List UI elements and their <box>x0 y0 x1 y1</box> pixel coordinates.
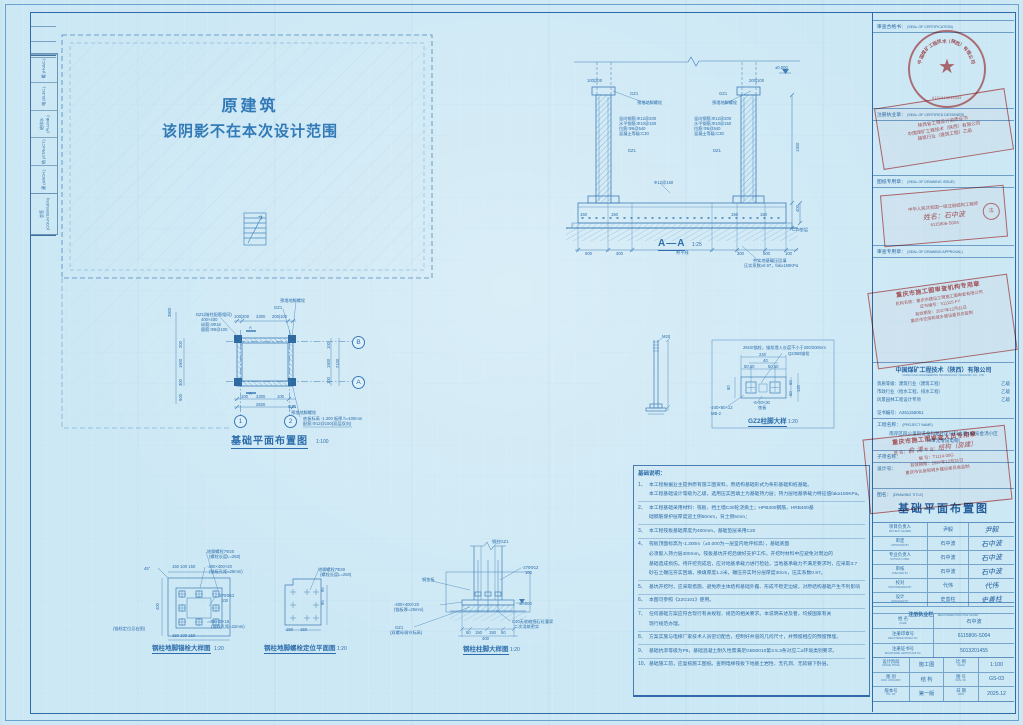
dim-label: 100 <box>327 377 332 384</box>
note-item: 8、方案实施与电梯厂家技术人员密切配合，控制好井道的几何尺寸，并预留相应的预留预… <box>638 631 865 645</box>
foundation-notes: 基础说明： 1、本工程根据业主提供原有施工图资料，原结构基础形式为条形基础和桩基… <box>633 465 870 697</box>
scale-label: 1:20 <box>788 420 798 426</box>
meta-row: 设计阶段DESIGN PHASE施工图比 例SCALE1:100 <box>873 658 1014 673</box>
dim-label: 50 <box>501 631 506 636</box>
dim-label: 150 <box>475 631 482 636</box>
detail-title: GZ2柱脚大样 <box>748 418 787 427</box>
dim-label: 40 <box>763 359 768 364</box>
scale-label: 1:20 <box>214 647 224 653</box>
dim-label: 45° <box>144 567 150 572</box>
registered-row: 注册证书号REGISTERED CERTIFICATE NO.501320145… <box>873 643 1014 658</box>
rebar-label: 100 <box>525 571 532 576</box>
rebar-label: 混凝土等级:C30 <box>619 132 649 137</box>
note-label: (锚栓定位见右图) <box>113 627 145 632</box>
rebar-label: 箍筋:Φ8@100 <box>201 328 227 333</box>
certificate-number: A261155061 <box>899 410 924 415</box>
signature-row: 专业负责人DIVISION CHIEF石中波石中波 <box>873 551 1014 565</box>
reviewer-stamp: 重庆市施工图审查人员专用章 姓 名：俞 涛 专 业：结构（房建） 编 号：T11… <box>862 425 1012 515</box>
dim-label: 400 <box>482 637 489 642</box>
dim-label: 1900 <box>327 359 332 368</box>
note-item: 3、本工程筏板基础厚度为400mm，基础垫层采用C20 <box>638 524 865 538</box>
detail-title: 钢柱地脚锚栓大样图 <box>152 645 211 654</box>
plate-label: (锚板孔距=25mm) <box>209 570 243 575</box>
column-label: GZ1 <box>288 405 296 410</box>
scale-label: 1:20 <box>337 647 347 653</box>
dim-label: 300 <box>737 252 744 257</box>
dim-label: 100 <box>241 395 248 400</box>
scale-label: 1:100 <box>316 440 329 446</box>
dim-label: 95 <box>321 587 326 592</box>
dim-label: 1300 <box>796 143 801 152</box>
seal-row-label: 图纸专用章： <box>877 180 906 185</box>
bolt-label: (螺栓长度L=250) <box>320 573 351 578</box>
note-item: 10、基础施工前，应复核施工图纸。查明电梯筏板下地基土岩性、无孔洞、无软弱下卧层… <box>638 658 865 672</box>
dim-label: 300 <box>616 252 623 257</box>
note-item: 7、任何基础方案应符合现行有关规程、规范的相关要求。本说明未述及者，均按国家有关… <box>638 608 865 631</box>
signature-row: 校对PROOFREADED BY代伟代伟 <box>873 579 1014 593</box>
dim-label: 150 <box>760 213 767 218</box>
column-label: GZ1 <box>719 92 727 97</box>
plate-label: 垫板 <box>758 406 766 411</box>
dim-label: 3800 <box>168 308 173 317</box>
dim-label: 240 <box>759 353 766 358</box>
dim-label: 60 <box>789 380 794 385</box>
dim-label: 500 <box>763 252 770 257</box>
qualification-rows: 资质等级：建筑行业（建筑工程）乙级市政行业（给水工程、排水工程）乙级风景园林工程… <box>877 380 1010 404</box>
existing-building-line2: 该阴影不在本次设计范围 <box>90 120 410 141</box>
seal-approval-row: 审查专用章： (SEAL OF DRAWING APPROVAL) <box>873 245 1014 258</box>
note-item: 1、本工程根据业主提供原有施工图资料，原结构基础形式为条形基础和桩基础。本工程基… <box>638 479 865 501</box>
note-item: 5、基坑开挖时，应采取措施，避免原主体结构基础外露、形成不稳定边坡，对原结构基础… <box>638 580 865 594</box>
dim-label: 60 <box>789 391 794 396</box>
scale-label: 1:20 <box>510 648 520 654</box>
existing-building-note: 原建筑 该阴影不在本次设计范围 <box>90 92 410 141</box>
certificate-label: 证书编号： <box>877 410 899 415</box>
dim-label: 2500 <box>256 403 265 408</box>
label: C15垫层 <box>792 228 808 233</box>
dim-label: 100 <box>785 252 792 257</box>
dim-label: 150 <box>580 213 587 218</box>
cut-label: A <box>249 392 252 397</box>
column-label: 钢柱GZ1 <box>492 540 509 545</box>
rebar-label: 100 <box>221 599 228 604</box>
rebar-label: Φ12@150 <box>654 181 673 186</box>
grid-bubble: B <box>352 336 365 349</box>
note-label: (双螺母调节标高) <box>390 631 422 636</box>
reviewer-name-label: 姓 名： <box>894 449 909 455</box>
grid-bubble: 1 <box>234 415 247 428</box>
plate-label: 钢垫板 <box>422 578 435 583</box>
dim-label: 1900 <box>179 359 184 368</box>
plate-label: MB-2 <box>711 412 721 417</box>
dim-label: 2300 <box>256 395 265 400</box>
bolt-label: 预埋地脚螺栓 <box>291 411 316 416</box>
dim-label: 95 <box>321 600 326 605</box>
dim-label: 50,50 <box>744 365 754 370</box>
signature-row: 审核CHECKED BY石中波石中波 <box>873 565 1014 579</box>
dim-label: 50 <box>466 631 471 636</box>
seal-row-label: 审查合格书： <box>877 25 906 30</box>
dim-label: 100 <box>327 342 332 349</box>
dim-label: 150 <box>300 628 307 633</box>
label: 压实系数≥0.97，fak≥150KPa <box>744 264 798 269</box>
detail-title: 钢柱地脚螺栓定位平面图 <box>264 645 336 654</box>
company-name-en: CHINA COAL ENGINEERING TECHNOLOGY (SHAAN… <box>873 374 1014 377</box>
note-label: 2M10锚栓，锚栓埋入长度不小于200/200mm <box>743 346 826 351</box>
seal-row-label-en: (SEAL OF CERTIFICATION) <box>907 25 953 29</box>
dim-label: 2100 <box>336 359 341 368</box>
note-item: 4、筏板顶面标高为-1.300m（±0.000为一层室内地坪标高），基础底面必须… <box>638 538 865 580</box>
signature-table: 项目负责人PROJECT LEADER尹毅尹毅审定APPROVED BY石中波石… <box>873 522 1014 607</box>
note-item: 2、本工程基础采用材料：筏板、挡土墙C30砼浇捣土；HPB300钢筋，HRB40… <box>638 501 865 524</box>
plate-label: (锚栓孔距=22mm) <box>211 625 245 630</box>
note-item: 9、基础抗渗等级为P8，基础混凝土耐久性需满足GB50010第3.5.3条对应二… <box>638 644 865 658</box>
dim-label: 150 100 150 <box>172 565 195 570</box>
plan-title: 基础平面布置图 <box>231 436 308 449</box>
project-label-en: (PROJECT NAME) <box>902 423 932 427</box>
dim-label: 150 <box>489 631 496 636</box>
level-label: ±0.000 <box>775 66 788 71</box>
dim-label: 50,50 <box>768 365 778 370</box>
meta-row: 版本号VOL. NO.第一版日 期DATE2025.12 <box>873 687 1014 701</box>
dim-label: 120 <box>797 385 802 392</box>
dim-label: 200 <box>179 341 184 348</box>
cut-label: A <box>249 326 252 331</box>
dim-label: 80 <box>727 385 732 390</box>
notes-header: 基础说明： <box>638 469 865 477</box>
dim-label: 150 <box>286 628 293 633</box>
meta-row: 图 别DWG. CATEGORY结 构图 号DWG. NO.GS-03 <box>873 673 1014 688</box>
dim-label: 400 <box>796 205 801 212</box>
note-label: 二次浇筑密实 <box>514 625 539 630</box>
note-label: Q235B锚栓 <box>788 352 809 357</box>
dim-label: 2300 <box>256 315 265 320</box>
bolt-label: 预埋地脚螺栓 <box>637 101 662 106</box>
reviewer-name: 俞 涛 <box>907 445 923 455</box>
registered-engineer-stamp: 中华人民共和国一级注册结构工程师 姓名：石中波 6115806-S004 注 <box>880 185 1008 248</box>
bolt-label: 预埋地脚螺栓 <box>280 299 305 304</box>
rebar-label: 混凝土等级:C30 <box>694 132 724 137</box>
drawing-meta-grid: 设计阶段DESIGN PHASE施工图比 例SCALE1:100图 别DWG. … <box>873 657 1014 702</box>
qualification-row: 市政行业（给水工程、排水工程）乙级 <box>877 388 1010 396</box>
detail-title: 钢柱柱脚大样图 <box>463 646 509 655</box>
dim-label: 500 <box>179 394 184 401</box>
star-icon: ★ <box>910 54 984 79</box>
registered-row: 注册印章号REGISTERED SIGNET NO.6115806-S004 <box>873 628 1014 643</box>
dim-label: 100 <box>277 395 284 400</box>
scale-label: 1:25 <box>692 243 702 249</box>
note-label: 配筋:Φ12@150(双层双向) <box>303 422 351 427</box>
existing-building-line1: 原建筑 <box>90 92 410 116</box>
dim-label: 150 <box>731 213 738 218</box>
column-label: GZ1 <box>630 92 638 97</box>
qualification-row: 资质等级：建筑行业（建筑工程）乙级 <box>877 380 1010 388</box>
qualification-row: 风景园林工程设计专项乙级 <box>877 396 1010 404</box>
dim-label: 200|100 <box>749 79 764 84</box>
dim-label: 100|200 <box>234 315 249 320</box>
dim-label: 300 <box>179 379 184 386</box>
registered-row: 姓 名NAME石中波 <box>873 613 1014 628</box>
level-label: ±0.000 <box>519 602 532 607</box>
dim-label: 200|100 <box>272 315 287 320</box>
grid-bubble: 2 <box>284 415 297 428</box>
notes-items: 1、本工程根据业主提供原有施工图资料，原结构基础形式为条形基础和桩基础。本工程基… <box>638 479 865 672</box>
bolt-label: (螺栓长度L=250) <box>209 555 240 560</box>
signature-row: 项目负责人PROJECT LEADER尹毅尹毅 <box>873 523 1014 537</box>
dim-label: 500 <box>585 252 592 257</box>
seal-row-label-en: (SEAL OF DRAWING APPROVAL) <box>907 250 963 254</box>
bolt-label: 预埋地脚螺栓 <box>712 101 737 106</box>
column-label: DZ1 <box>713 149 721 154</box>
seal-row-label: 审查专用章： <box>877 250 906 255</box>
dim-label: 100|200 <box>587 79 602 84</box>
note-item: 6、本图可参照《22G101》使用。 <box>638 594 865 608</box>
registered-rows: 姓 名NAME石中波注册印章号REGISTERED SIGNET NO.6115… <box>873 613 1014 658</box>
column-label: DZ1 <box>628 149 636 154</box>
blueprint-sheet: 会签 (COUNTERSIGN) 建 (ARCH.)结 (STRUCT.)给排水… <box>0 0 1023 725</box>
certificate-row: 证书编号：A261155061 <box>877 410 924 416</box>
dim-label: 150 <box>611 213 618 218</box>
grid-bubble: A <box>352 376 365 389</box>
reviewer-major-label: 专 业： <box>924 446 939 452</box>
label: 夯平线 <box>676 251 689 256</box>
signature-row: 审定APPROVED BY石中波石中波 <box>873 537 1014 551</box>
section-title: A—A <box>658 238 685 251</box>
plate-label: (锚板厚=25mm) <box>394 608 423 613</box>
plate-label: -240×80×12 <box>710 406 733 411</box>
dim-label: 400 <box>156 603 161 610</box>
bolt-label: M20 <box>662 335 670 340</box>
column-label: GZ1 <box>274 306 282 311</box>
project-label: 工程名称： <box>877 423 901 428</box>
dim-label: 150 100 150 <box>172 634 195 639</box>
seal-row-label-en: (SEAL OF DRAWING ISSUE) <box>907 180 954 184</box>
